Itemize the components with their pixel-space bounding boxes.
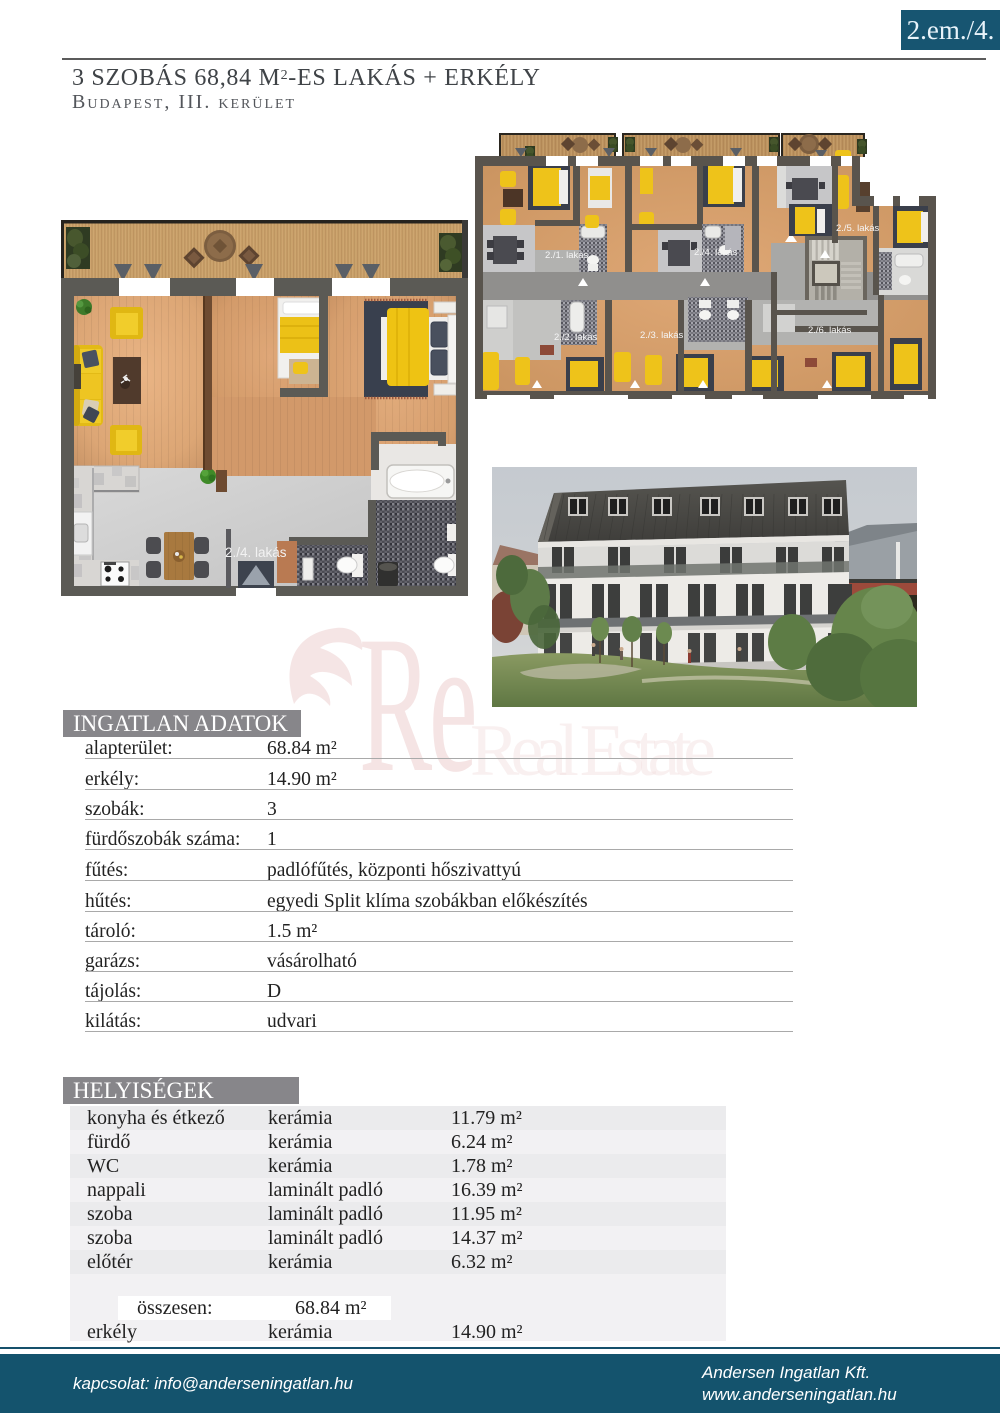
svg-text:2./4. lakás: 2./4. lakás: [694, 247, 738, 258]
svg-text:Re: Re: [359, 596, 478, 808]
svg-text:2./6. lakás: 2./6. lakás: [808, 325, 852, 336]
svg-text:2./3. lakás: 2./3. lakás: [640, 330, 684, 341]
svg-text:2./4. lakás: 2./4. lakás: [225, 545, 287, 560]
svg-text:2./2. lakás: 2./2. lakás: [554, 332, 598, 343]
svg-text:2./5. lakás: 2./5. lakás: [836, 223, 880, 234]
svg-text:Real Estate: Real Estate: [470, 710, 716, 792]
svg-text:2./1. lakás: 2./1. lakás: [545, 250, 589, 261]
